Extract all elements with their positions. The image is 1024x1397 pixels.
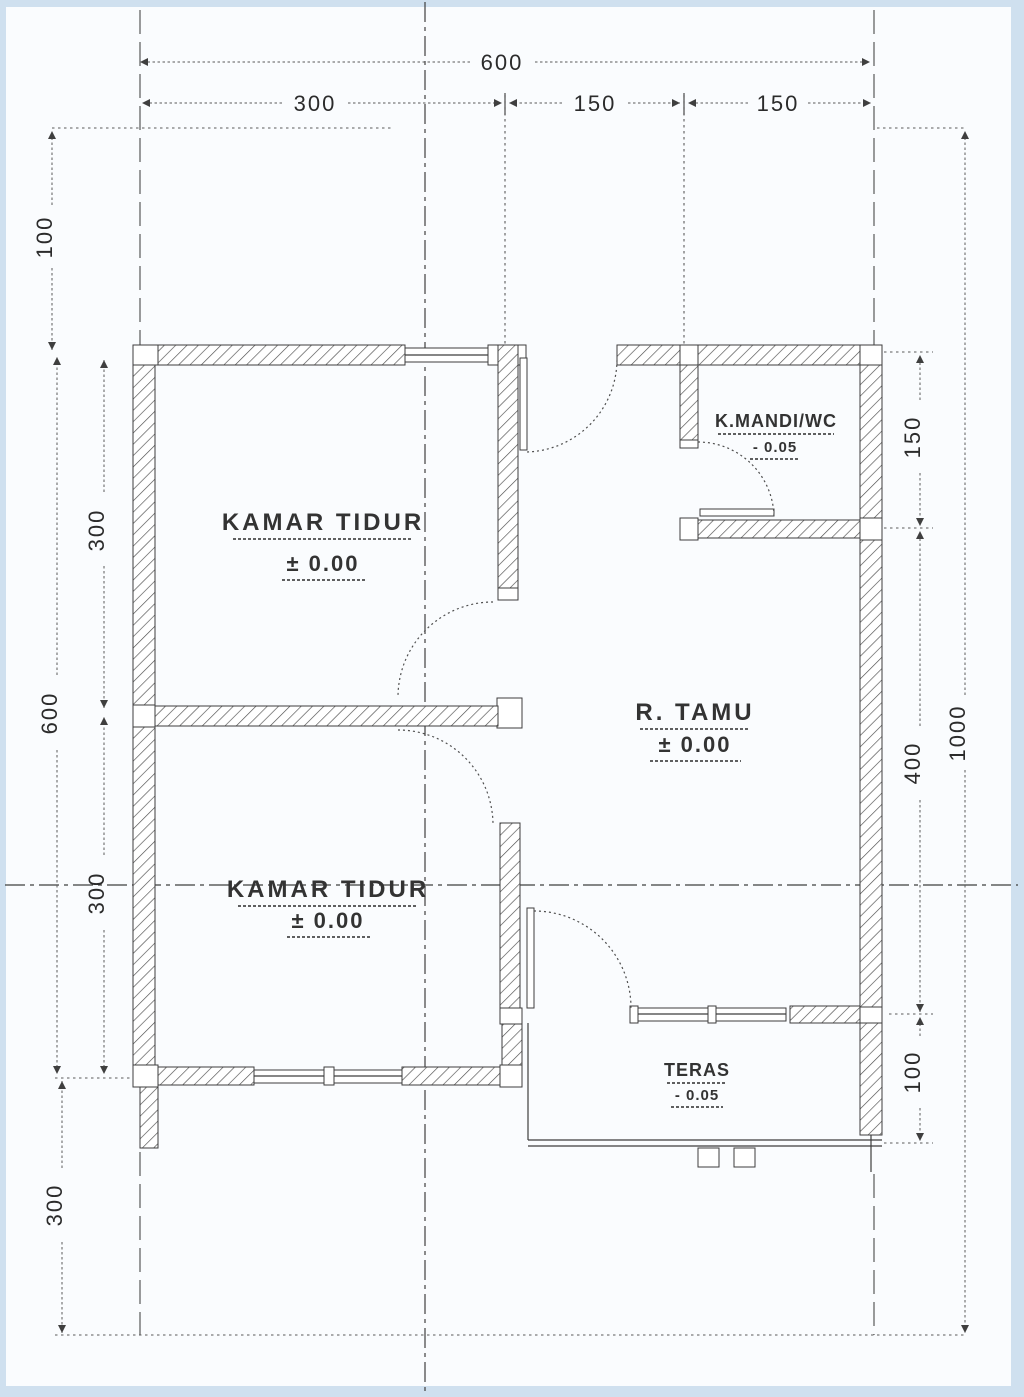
dim-left-margin-bottom: 300 — [42, 1184, 67, 1227]
wall-segment — [158, 345, 405, 365]
dim-right-lot-total: 1000 — [945, 705, 970, 762]
door-frame — [680, 440, 698, 448]
wall-post — [324, 1067, 334, 1085]
level-label-terrace: - 0.05 — [675, 1087, 719, 1104]
wall-segment — [698, 345, 860, 365]
walls — [133, 345, 882, 1172]
wall-stub — [140, 1087, 158, 1148]
wall-junction — [500, 1008, 522, 1024]
dim-right-terrace: 100 — [900, 1051, 925, 1094]
terrace-step-column — [698, 1148, 719, 1167]
wall-post — [708, 1006, 716, 1023]
wall-segment — [790, 1006, 860, 1023]
wall-junction — [860, 518, 882, 540]
wall-segment — [698, 520, 860, 538]
wall-segment — [500, 823, 520, 1008]
wall-segment — [502, 1024, 522, 1065]
wall-segment — [133, 365, 155, 705]
dim-left-house-total: 600 — [37, 692, 62, 735]
dim-left-room2: 300 — [84, 872, 109, 915]
room-label-bath: K.MANDI/WC — [715, 411, 837, 431]
room-label-terrace: TERAS — [664, 1060, 730, 1080]
dim-right-living: 400 — [900, 742, 925, 785]
entry-door-leaf — [520, 358, 527, 450]
dim-top-total: 600 — [481, 50, 524, 75]
door-frame — [498, 588, 518, 600]
wall-segment — [498, 345, 518, 588]
level-label-bedroom2: ± 0.00 — [291, 908, 364, 933]
wall-junction — [133, 705, 155, 727]
wall-segment — [617, 345, 680, 365]
wall-corner — [133, 1065, 158, 1087]
terrace-door-leaf — [527, 908, 534, 1008]
wall-segment — [158, 1067, 254, 1085]
floor-plan-svg: 600 300 150 150 100 600 300 300 300 150 … — [0, 0, 1024, 1397]
room-label-bedroom2: KAMAR TIDUR — [227, 876, 429, 903]
room-label-living: R. TAMU — [635, 699, 754, 726]
dim-top-seg2: 150 — [574, 91, 617, 116]
level-label-living: ± 0.00 — [658, 732, 731, 757]
dim-right-bath: 150 — [900, 416, 925, 459]
wall-segment — [860, 540, 882, 1007]
wall-post — [630, 1006, 638, 1023]
wall-segment — [860, 365, 882, 518]
dimension-labels: 600 300 150 150 100 600 300 300 300 150 … — [32, 50, 970, 1226]
wall-segment — [133, 727, 155, 1065]
wall-segment — [155, 706, 498, 726]
dim-top-seg3: 150 — [757, 91, 800, 116]
terrace-step-column — [734, 1148, 755, 1167]
wall-segment — [860, 1023, 882, 1135]
entry-door-swing-arc — [527, 360, 617, 452]
wall-post — [488, 345, 498, 365]
doors — [398, 358, 774, 1008]
level-label-bath: - 0.05 — [753, 439, 797, 456]
room-label-bedroom1: KAMAR TIDUR — [222, 509, 424, 536]
wall-corner — [500, 1065, 522, 1087]
bedroom2-door-swing-arc — [398, 730, 493, 825]
wall-corner — [860, 345, 882, 365]
wall-post — [680, 345, 698, 365]
wall-junction — [860, 1007, 882, 1023]
wall-segment — [680, 365, 698, 440]
bedroom1-door-swing-arc — [398, 602, 493, 697]
terrace-door-swing-arc — [534, 911, 631, 1008]
level-label-bedroom1: ± 0.00 — [286, 551, 359, 576]
bathroom-door-leaf — [700, 509, 774, 516]
dim-left-margin-top: 100 — [32, 216, 57, 259]
dim-left-room1: 300 — [84, 509, 109, 552]
wall-segment — [402, 1067, 500, 1085]
wall-junction — [497, 698, 522, 728]
dim-top-seg1: 300 — [294, 91, 337, 116]
wall-corner — [133, 345, 158, 365]
wall-junction — [680, 518, 698, 540]
